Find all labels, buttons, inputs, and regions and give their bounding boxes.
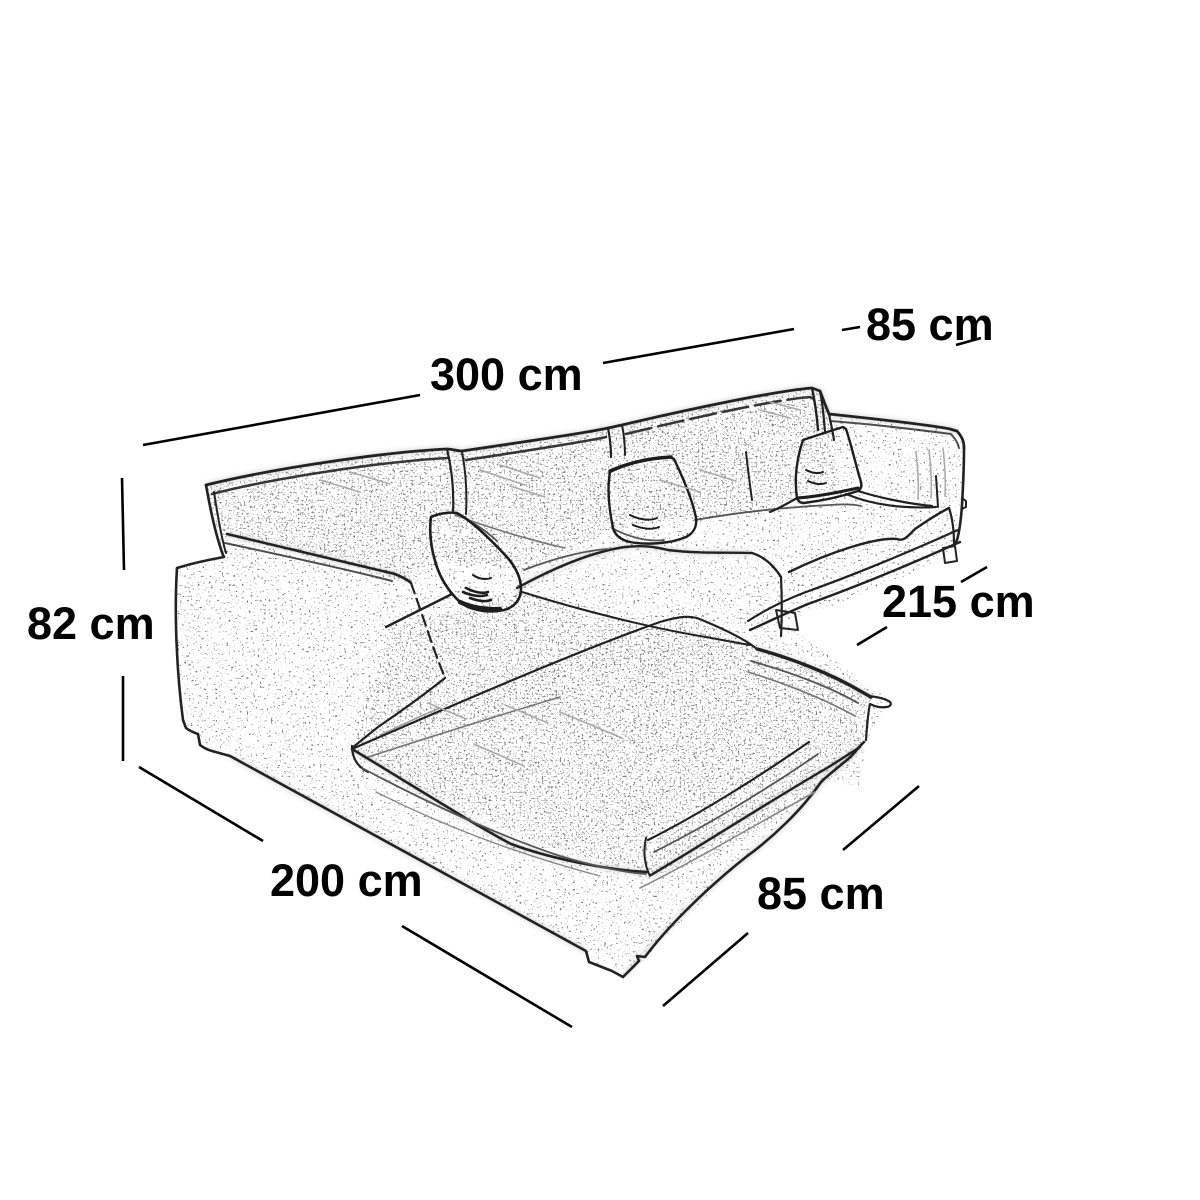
svg-text:300 cm: 300 cm — [430, 349, 583, 400]
svg-text:215 cm: 215 cm — [882, 576, 1035, 627]
svg-text:200 cm: 200 cm — [270, 855, 423, 906]
svg-text:85 cm: 85 cm — [866, 299, 994, 350]
svg-text:85 cm: 85 cm — [757, 868, 885, 919]
svg-text:82 cm: 82 cm — [27, 598, 155, 649]
